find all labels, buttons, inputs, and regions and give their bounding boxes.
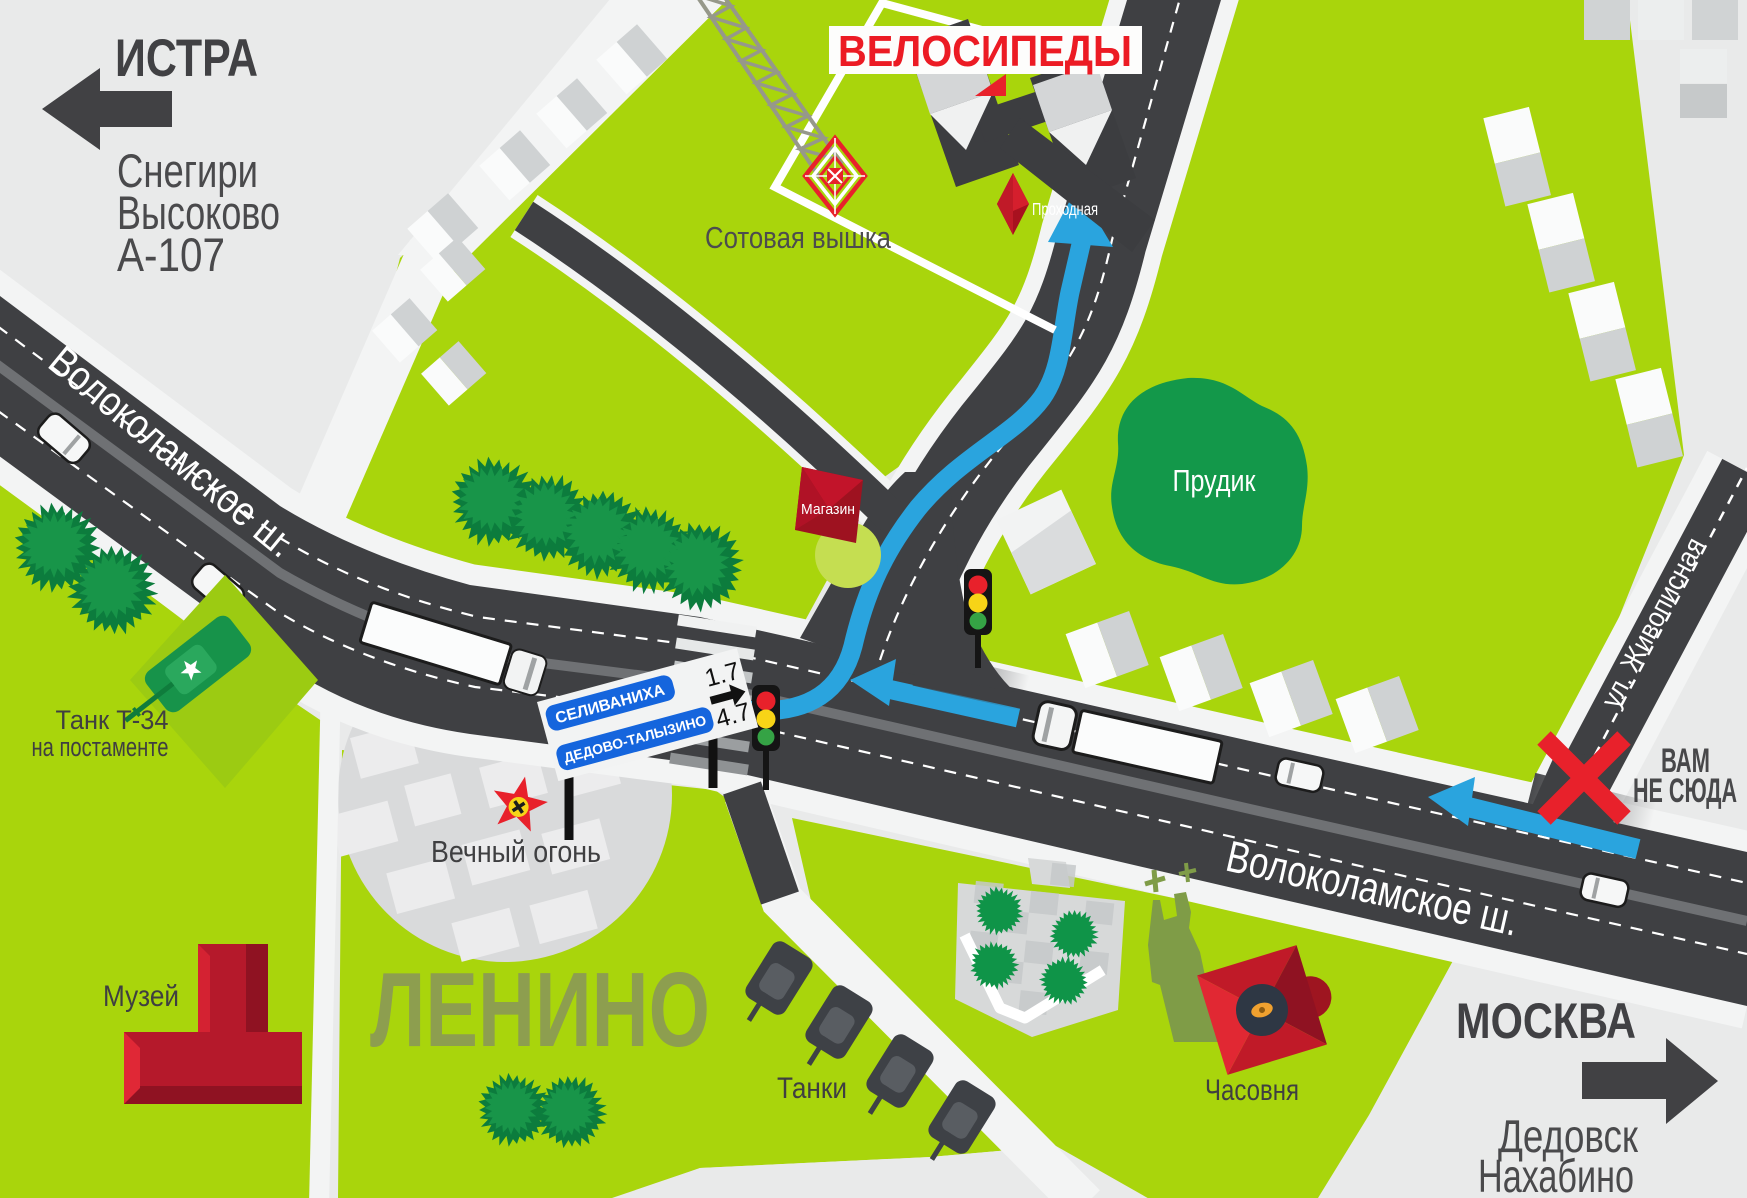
- svg-text:ЛЕНИНО: ЛЕНИНО: [370, 951, 710, 1069]
- svg-text:Вечный огонь: Вечный огонь: [431, 834, 601, 869]
- svg-text:Часовня: Часовня: [1205, 1074, 1299, 1107]
- svg-text:на постаменте: на постаменте: [32, 732, 169, 762]
- svg-text:Нахабино: Нахабино: [1478, 1150, 1634, 1198]
- svg-text:ВЕЛОСИПЕДЫ: ВЕЛОСИПЕДЫ: [838, 27, 1132, 76]
- svg-text:Магазин: Магазин: [801, 502, 855, 518]
- svg-text:Сотовая вышка: Сотовая вышка: [705, 220, 892, 255]
- svg-text:ИСТРА: ИСТРА: [115, 29, 258, 88]
- svg-text:Музей: Музей: [103, 980, 179, 1013]
- svg-text:Танк Т-34: Танк Т-34: [56, 705, 169, 735]
- svg-text:Проходная: Проходная: [1032, 199, 1098, 219]
- svg-text:Прудик: Прудик: [1173, 463, 1256, 498]
- svg-text:А-107: А-107: [117, 228, 225, 281]
- svg-text:Танки: Танки: [777, 1072, 847, 1105]
- svg-text:НЕ СЮДА: НЕ СЮДА: [1633, 772, 1737, 810]
- svg-text:МОСКВА: МОСКВА: [1456, 993, 1636, 1049]
